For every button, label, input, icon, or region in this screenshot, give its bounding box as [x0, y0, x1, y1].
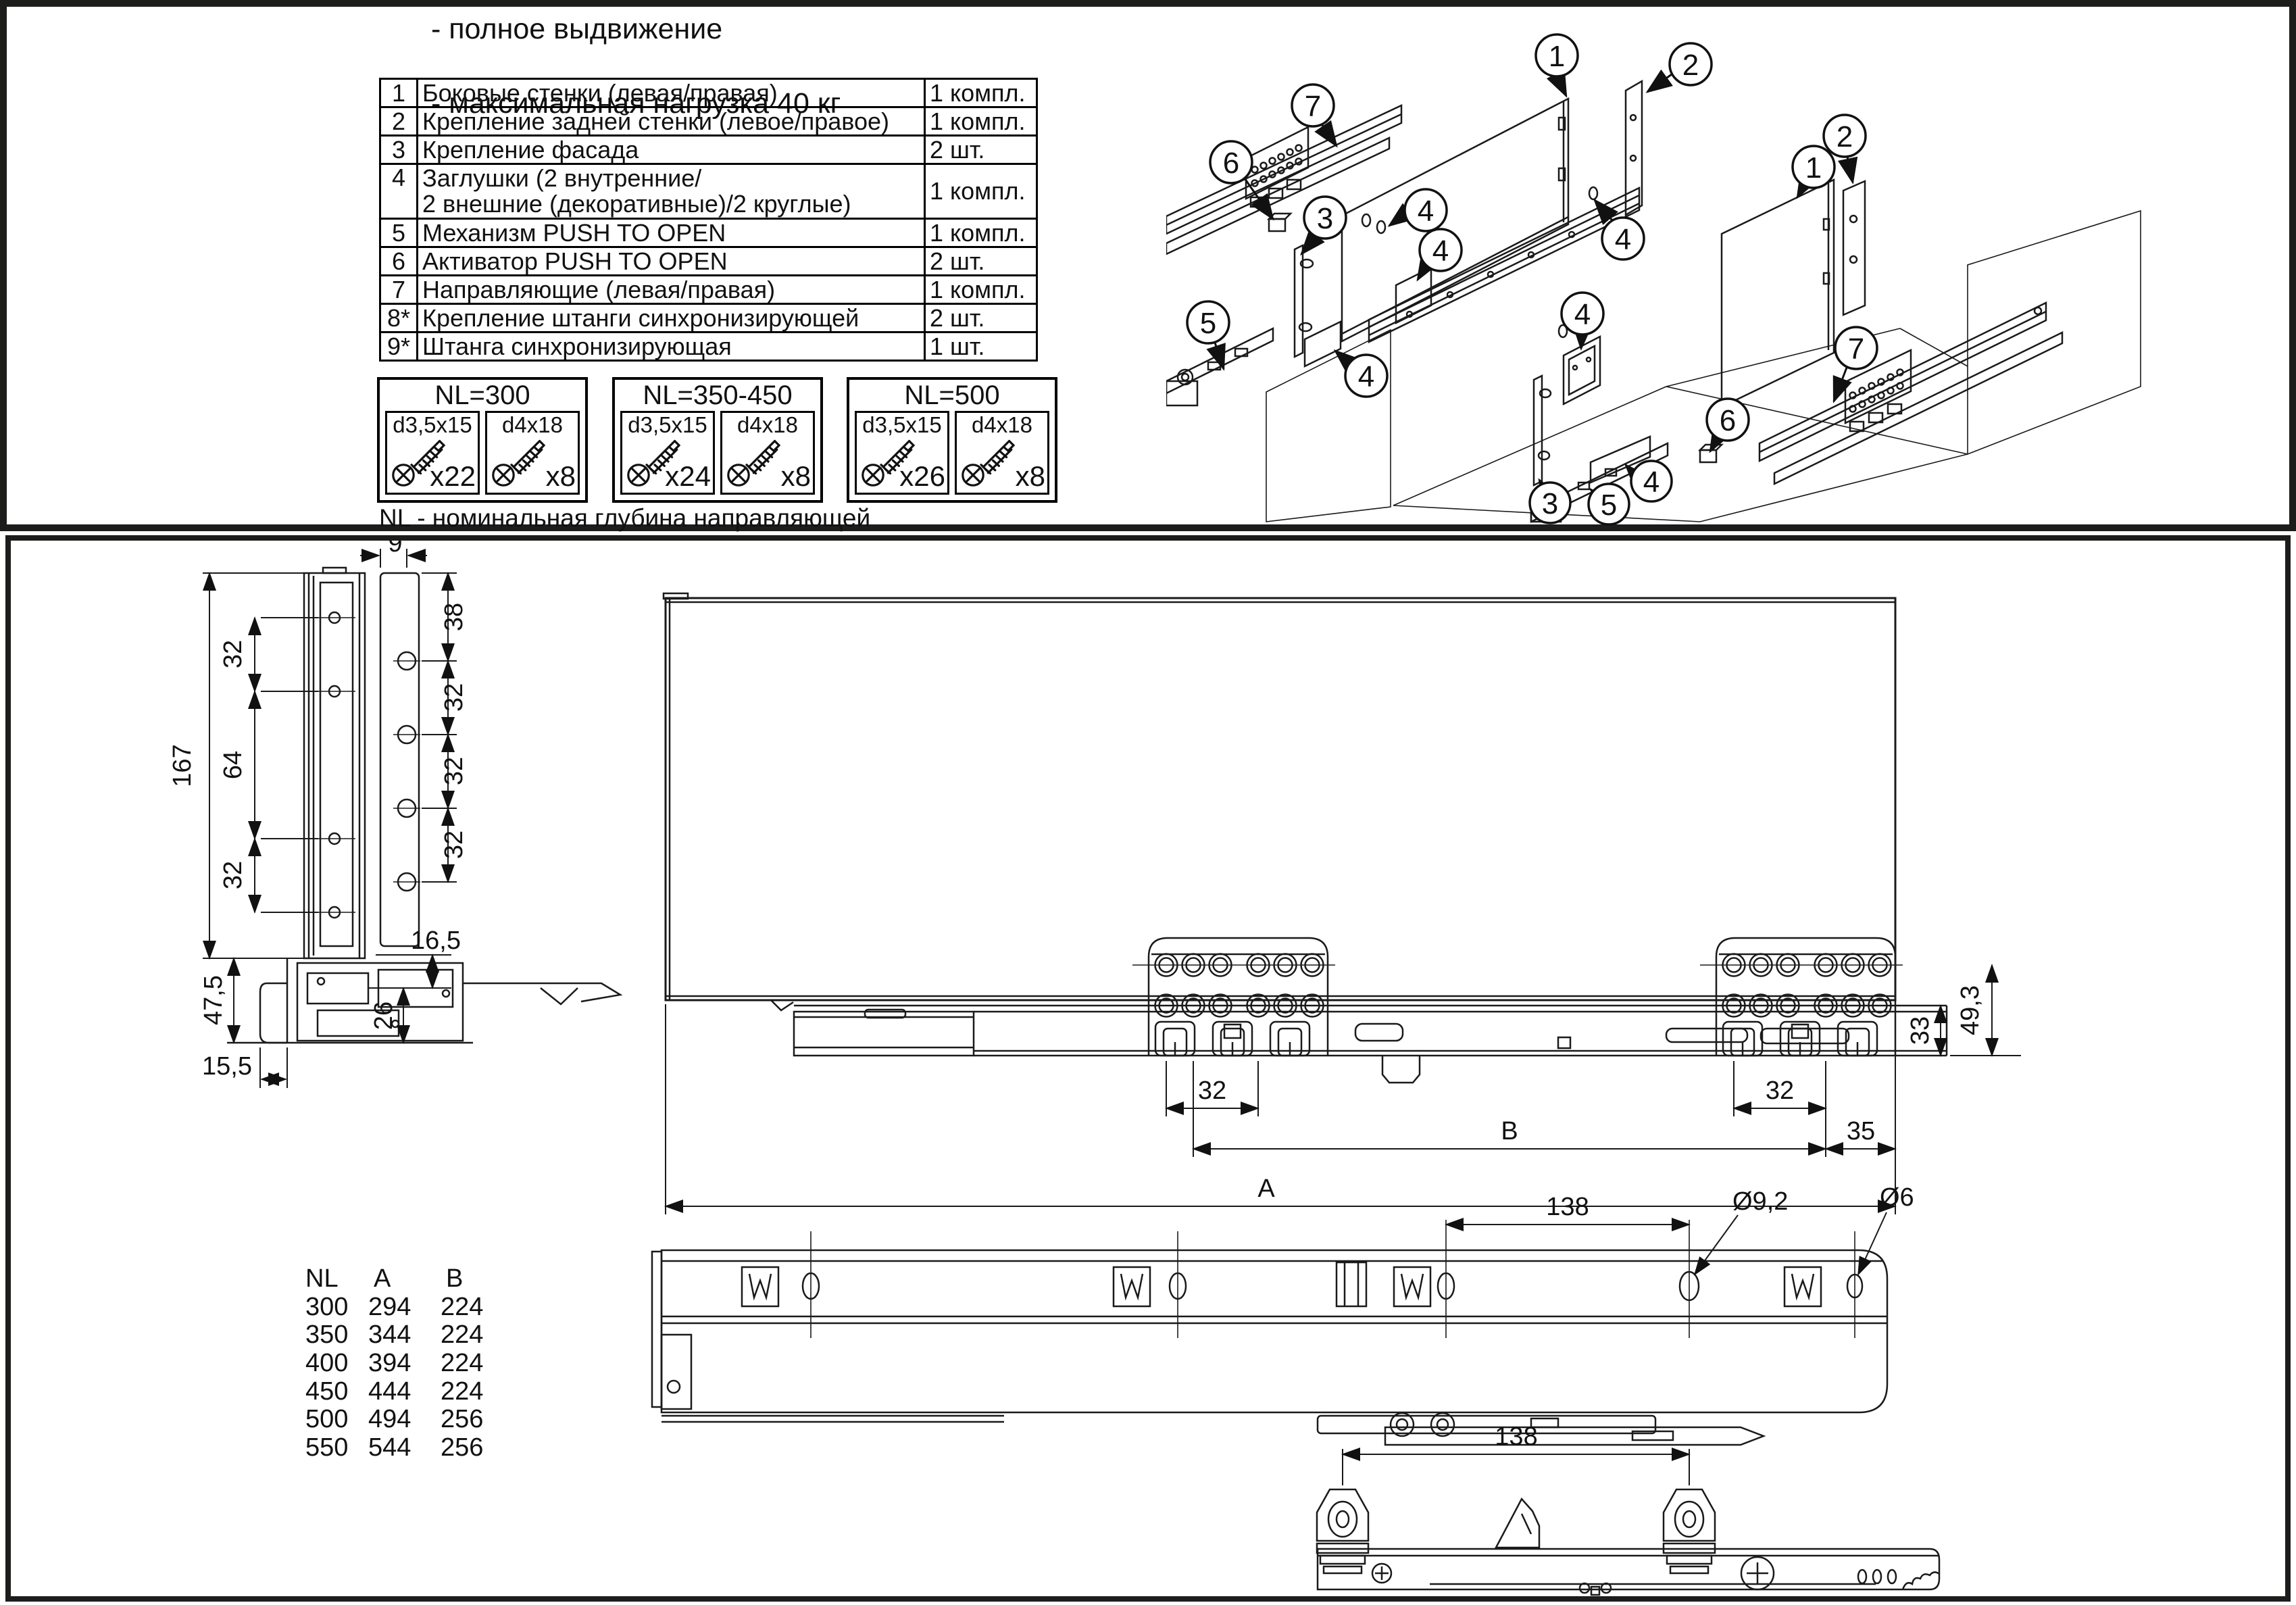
svg-text:64: 64	[219, 751, 247, 779]
svg-text:35: 35	[1847, 1117, 1875, 1145]
svg-text:Ø6: Ø6	[1880, 1183, 1914, 1212]
svg-text:32: 32	[1766, 1077, 1794, 1105]
mounting-post	[1317, 1489, 1368, 1573]
table-row: 1Боковые стенки (левая/правая)1 компл.	[380, 79, 1037, 107]
callout-4: 4	[1335, 351, 1387, 397]
size-table: NL A B 300 294 224 350 344 224 400 394 2…	[305, 1264, 483, 1462]
svg-text:224: 224	[441, 1377, 483, 1406]
table-row: 6Активатор PUSH TO OPEN2 шт.	[380, 247, 1037, 276]
callout-4: 4	[1389, 189, 1447, 231]
size-table-rows: 300 294 224 350 344 224 400 394 224 450 …	[305, 1293, 483, 1462]
svg-text:444: 444	[368, 1377, 411, 1406]
screw-box: d3,5x15 x24	[620, 411, 715, 495]
runner-right	[1760, 303, 2062, 484]
svg-text:4: 4	[1418, 195, 1434, 228]
dimension-drawings-panel: 9 167 32 64 32 47,5 38 32 32 32 16,5 26 …	[5, 535, 2291, 1602]
screw-kit-nl300: NL=300 d3,5x15 x22 d4x18 x8	[377, 377, 588, 503]
svg-text:26: 26	[370, 1002, 398, 1030]
svg-text:256: 256	[441, 1405, 483, 1433]
svg-text:550: 550	[305, 1433, 348, 1462]
callout-4: 4	[1418, 229, 1462, 280]
table-row: 5Механизм PUSH TO OPEN1 компл.	[380, 219, 1037, 247]
mechanism-dim-label: 138	[1495, 1423, 1537, 1451]
top-view-dim-labels: 138 Ø9,2 Ø6	[1546, 1183, 1914, 1221]
svg-text:32: 32	[1198, 1077, 1226, 1105]
svg-text:400: 400	[305, 1349, 348, 1377]
screw-box: d4x18 x8	[955, 411, 1049, 495]
svg-text:3: 3	[1317, 202, 1333, 235]
svg-text:32: 32	[440, 831, 468, 859]
kit-title: NL=500	[849, 380, 1055, 411]
cross-section-dim-labels: 9 167 32 64 32 47,5 38 32 32 32 16,5 26 …	[168, 541, 468, 1081]
screw-box: d3,5x15 x22	[385, 411, 480, 495]
callout-2: 2	[1647, 43, 1712, 92]
mechanism-bottom-view: 138	[1317, 1423, 1939, 1595]
mechanism-dims	[1343, 1449, 1689, 1485]
rail-clips	[742, 1262, 1821, 1306]
screw-box: d4x18 x8	[485, 411, 580, 495]
sync-parts-top-view	[1318, 1413, 1764, 1445]
cabinet-outline	[1266, 211, 2141, 522]
side-view-dims	[666, 965, 2021, 1214]
facade-bracket-part	[1295, 245, 1313, 357]
svg-text:Ø9,2: Ø9,2	[1732, 1187, 1788, 1216]
svg-text:38: 38	[440, 603, 468, 631]
svg-text:256: 256	[441, 1433, 483, 1462]
svg-text:5: 5	[1601, 489, 1617, 522]
svg-text:15,5: 15,5	[202, 1052, 252, 1081]
callouts: 1 2 7 6 3 4 4 4 5 4 4 1 2 7 6 3 4 5	[1187, 34, 1877, 524]
svg-text:1: 1	[1549, 40, 1565, 73]
parts-table: 1Боковые стенки (левая/правая)1 компл. 2…	[379, 78, 1038, 362]
svg-text:4: 4	[1432, 234, 1449, 268]
svg-text:6: 6	[1223, 147, 1239, 180]
svg-text:32: 32	[219, 861, 247, 889]
svg-text:A: A	[1257, 1175, 1275, 1203]
callout-5: 5	[1589, 484, 1629, 524]
exploded-view-drawing: 1 2 7 6 3 4 4 4 5 4 4 1 2 7 6 3 4 5	[1166, 16, 2288, 527]
svg-text:33: 33	[1906, 1016, 1935, 1045]
svg-text:5: 5	[1200, 307, 1216, 340]
side-panel-right	[1722, 180, 1834, 407]
svg-text:224: 224	[441, 1320, 483, 1349]
svg-text:4: 4	[1358, 360, 1374, 393]
screw-kit-nl350-450: NL=350-450 d3,5x15 x24 d4x18 x8	[612, 377, 823, 503]
svg-text:6: 6	[1720, 404, 1736, 437]
table-row: 9*Штанга синхронизирующая1 шт.	[380, 332, 1037, 361]
svg-text:2: 2	[1837, 120, 1853, 153]
svg-text:7: 7	[1848, 332, 1864, 366]
kit-title: NL=300	[380, 380, 585, 411]
runner-top-view: 138 Ø9,2 Ø6	[652, 1183, 1914, 1445]
screw-icon	[722, 432, 782, 491]
svg-text:2: 2	[1682, 49, 1699, 82]
svg-text:344: 344	[368, 1320, 411, 1349]
svg-text:450: 450	[305, 1377, 348, 1406]
svg-text:B: B	[446, 1264, 463, 1293]
screw-icon	[957, 432, 1016, 491]
svg-text:167: 167	[168, 744, 197, 787]
svg-text:4: 4	[1615, 223, 1631, 256]
plug-part	[1305, 322, 1341, 366]
table-row: 4Заглушки (2 внутренние/ 2 внешние (деко…	[380, 164, 1037, 219]
screw-icon	[487, 432, 547, 491]
screw-box: d3,5x15 x26	[855, 411, 949, 495]
svg-text:138: 138	[1546, 1193, 1589, 1221]
kit-title: NL=350-450	[615, 380, 820, 411]
svg-text:500: 500	[305, 1405, 348, 1433]
side-view-dim-labels: 32 32 B 35 A 33 49,3	[1198, 985, 1985, 1203]
svg-text:NL: NL	[305, 1264, 339, 1293]
side-view: 32 32 B 35 A 33 49,3	[664, 593, 2021, 1214]
svg-text:47,5: 47,5	[199, 975, 228, 1025]
callout-1: 1	[1536, 34, 1578, 96]
svg-text:3: 3	[1542, 487, 1558, 520]
svg-text:A: A	[374, 1264, 391, 1293]
svg-text:32: 32	[440, 683, 468, 712]
callout-7: 7	[1292, 84, 1337, 146]
back-wall-bracket	[1843, 181, 1865, 315]
svg-text:1: 1	[1805, 151, 1822, 184]
instruction-header-panel: - полное выдвижение - максимальная нагру…	[0, 0, 2296, 531]
nl-footnote: NL - номинальная глубина направляющей	[379, 504, 870, 533]
screw-kit-nl500: NL=500 d3,5x15 x26 d4x18 x8	[847, 377, 1057, 503]
svg-text:9: 9	[388, 541, 402, 558]
svg-text:7: 7	[1305, 90, 1321, 123]
callout-3: 3	[1301, 197, 1346, 254]
svg-text:B: B	[1501, 1117, 1518, 1145]
cross-section-view: 9 167 32 64 32 47,5 38 32 32 32 16,5 26 …	[168, 541, 620, 1088]
svg-text:49,3: 49,3	[1956, 985, 1985, 1035]
rail-cross-section	[227, 958, 620, 1043]
table-row: 3Крепление фасада2 шт.	[380, 136, 1037, 164]
table-row: 7Направляющие (левая/правая)1 компл.	[380, 276, 1037, 304]
svg-text:224: 224	[441, 1293, 483, 1321]
svg-text:224: 224	[441, 1349, 483, 1377]
svg-text:4: 4	[1643, 466, 1659, 499]
callout-3: 3	[1530, 480, 1570, 523]
table-row: 2Крепление задней стенки (левое/правое)1…	[380, 107, 1037, 136]
note-line-1: - полное выдвижение	[431, 13, 722, 45]
svg-text:544: 544	[368, 1433, 411, 1462]
svg-text:294: 294	[368, 1293, 411, 1321]
panel-hole	[1589, 187, 1597, 199]
table-row: 8*Крепление штанги синхронизирующей2 шт.	[380, 304, 1037, 332]
svg-text:32: 32	[219, 640, 247, 668]
svg-text:494: 494	[368, 1405, 411, 1433]
top-view-dims	[1446, 1212, 1887, 1275]
callout-4: 4	[1626, 461, 1672, 501]
svg-text:4: 4	[1574, 298, 1591, 331]
callout-5: 5	[1187, 301, 1229, 369]
screw-box: d4x18 x8	[720, 411, 815, 495]
svg-text:16,5: 16,5	[411, 927, 461, 955]
dimension-drawings: 9 167 32 64 32 47,5 38 32 32 32 16,5 26 …	[11, 541, 2285, 1596]
svg-text:300: 300	[305, 1293, 348, 1321]
callout-6: 6	[1707, 399, 1749, 451]
facade-bracket-part	[1534, 376, 1551, 485]
svg-text:350: 350	[305, 1320, 348, 1349]
callout-7: 7	[1834, 327, 1877, 401]
svg-text:394: 394	[368, 1349, 411, 1377]
svg-text:32: 32	[440, 757, 468, 785]
activator-part	[1700, 445, 1722, 462]
callout-4: 4	[1562, 293, 1603, 349]
